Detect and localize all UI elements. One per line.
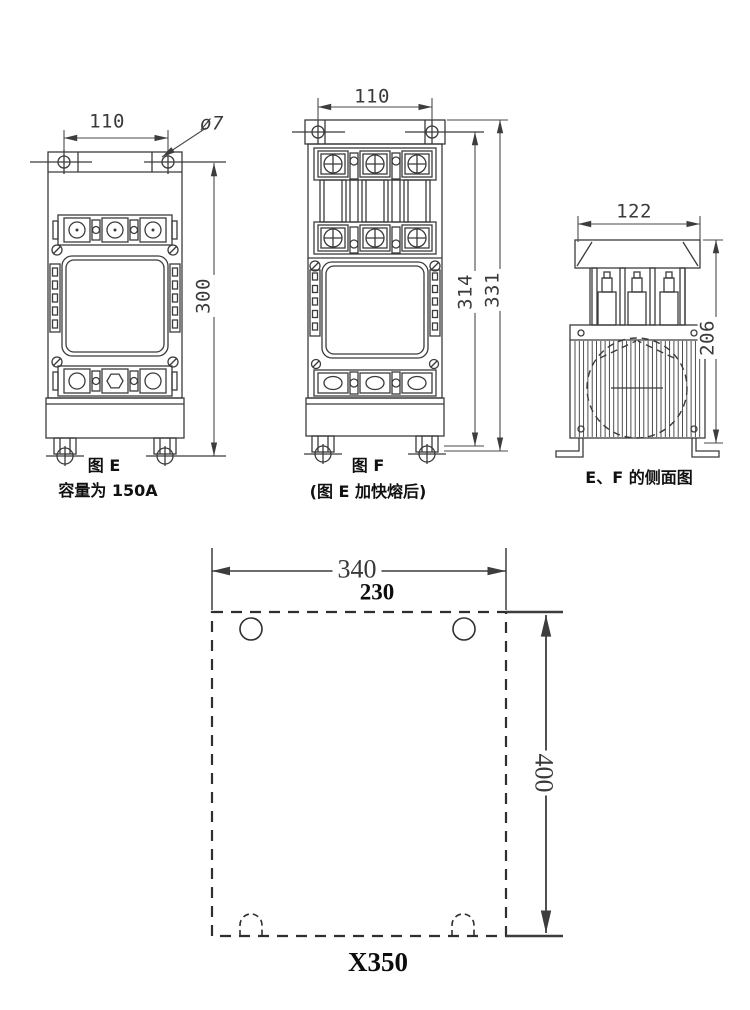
plate-height-dim: 400 bbox=[529, 751, 558, 796]
mounting-plate-drawing bbox=[212, 612, 506, 936]
fig-f-width-dim: 110 bbox=[354, 87, 390, 108]
fuse-terminal-row-top bbox=[314, 148, 436, 180]
mounting-hole-icon bbox=[453, 618, 475, 640]
side-view-width-dim: 122 bbox=[616, 202, 652, 223]
fig-e-label: 图 E bbox=[88, 457, 121, 475]
fuse-bodies bbox=[320, 180, 430, 222]
fig-e-height-dim: 300 bbox=[194, 275, 215, 317]
vent-slots bbox=[53, 268, 58, 328]
vent-slots bbox=[173, 268, 178, 328]
viewing-window bbox=[322, 262, 428, 358]
fig-e-caption: 容量为 150A bbox=[58, 482, 157, 500]
terminal-row-top bbox=[53, 215, 177, 245]
fig-f-outer-height-dim: 331 bbox=[483, 269, 504, 311]
vent-slots bbox=[433, 273, 438, 330]
terminal-studs bbox=[592, 268, 685, 325]
foot-bracket bbox=[556, 438, 583, 457]
fig-e-hole-dim: ø7 bbox=[200, 114, 224, 135]
fig-e-width-dim: 110 bbox=[89, 112, 125, 133]
plate-inner-width-dim: 230 bbox=[360, 579, 395, 604]
side-view-label: E、F 的侧面图 bbox=[585, 469, 692, 487]
vent-slots bbox=[313, 273, 318, 330]
drawing-sheet: 110 ø7 300 图 E 容量为 150A 110 314 331 图 F … bbox=[0, 0, 750, 1010]
terminal-row-bottom bbox=[53, 366, 177, 396]
plate-model-label: X350 bbox=[348, 948, 408, 978]
foot-bracket bbox=[692, 438, 719, 457]
side-view-height-dim: 206 bbox=[698, 317, 719, 359]
fig-f-caption: (图 E 加快熔后) bbox=[310, 483, 427, 501]
technical-drawing-art bbox=[0, 0, 750, 1010]
terminal-row-bottom bbox=[314, 370, 436, 396]
side-view-drawing bbox=[556, 240, 719, 457]
viewing-window bbox=[62, 256, 168, 356]
mounting-hole-icon bbox=[240, 618, 262, 640]
plate-outline bbox=[212, 612, 506, 936]
mounting-slot-icon bbox=[240, 914, 262, 936]
fig-f-label: 图 F bbox=[352, 457, 385, 475]
mounting-plate-dimensions bbox=[212, 548, 563, 936]
mounting-slot-icon bbox=[452, 914, 474, 936]
figure-e-dimensions bbox=[64, 128, 214, 456]
fig-f-inner-height-dim: 314 bbox=[456, 271, 477, 313]
heatsink bbox=[570, 325, 705, 438]
fuse-terminal-row-bottom bbox=[314, 222, 436, 254]
